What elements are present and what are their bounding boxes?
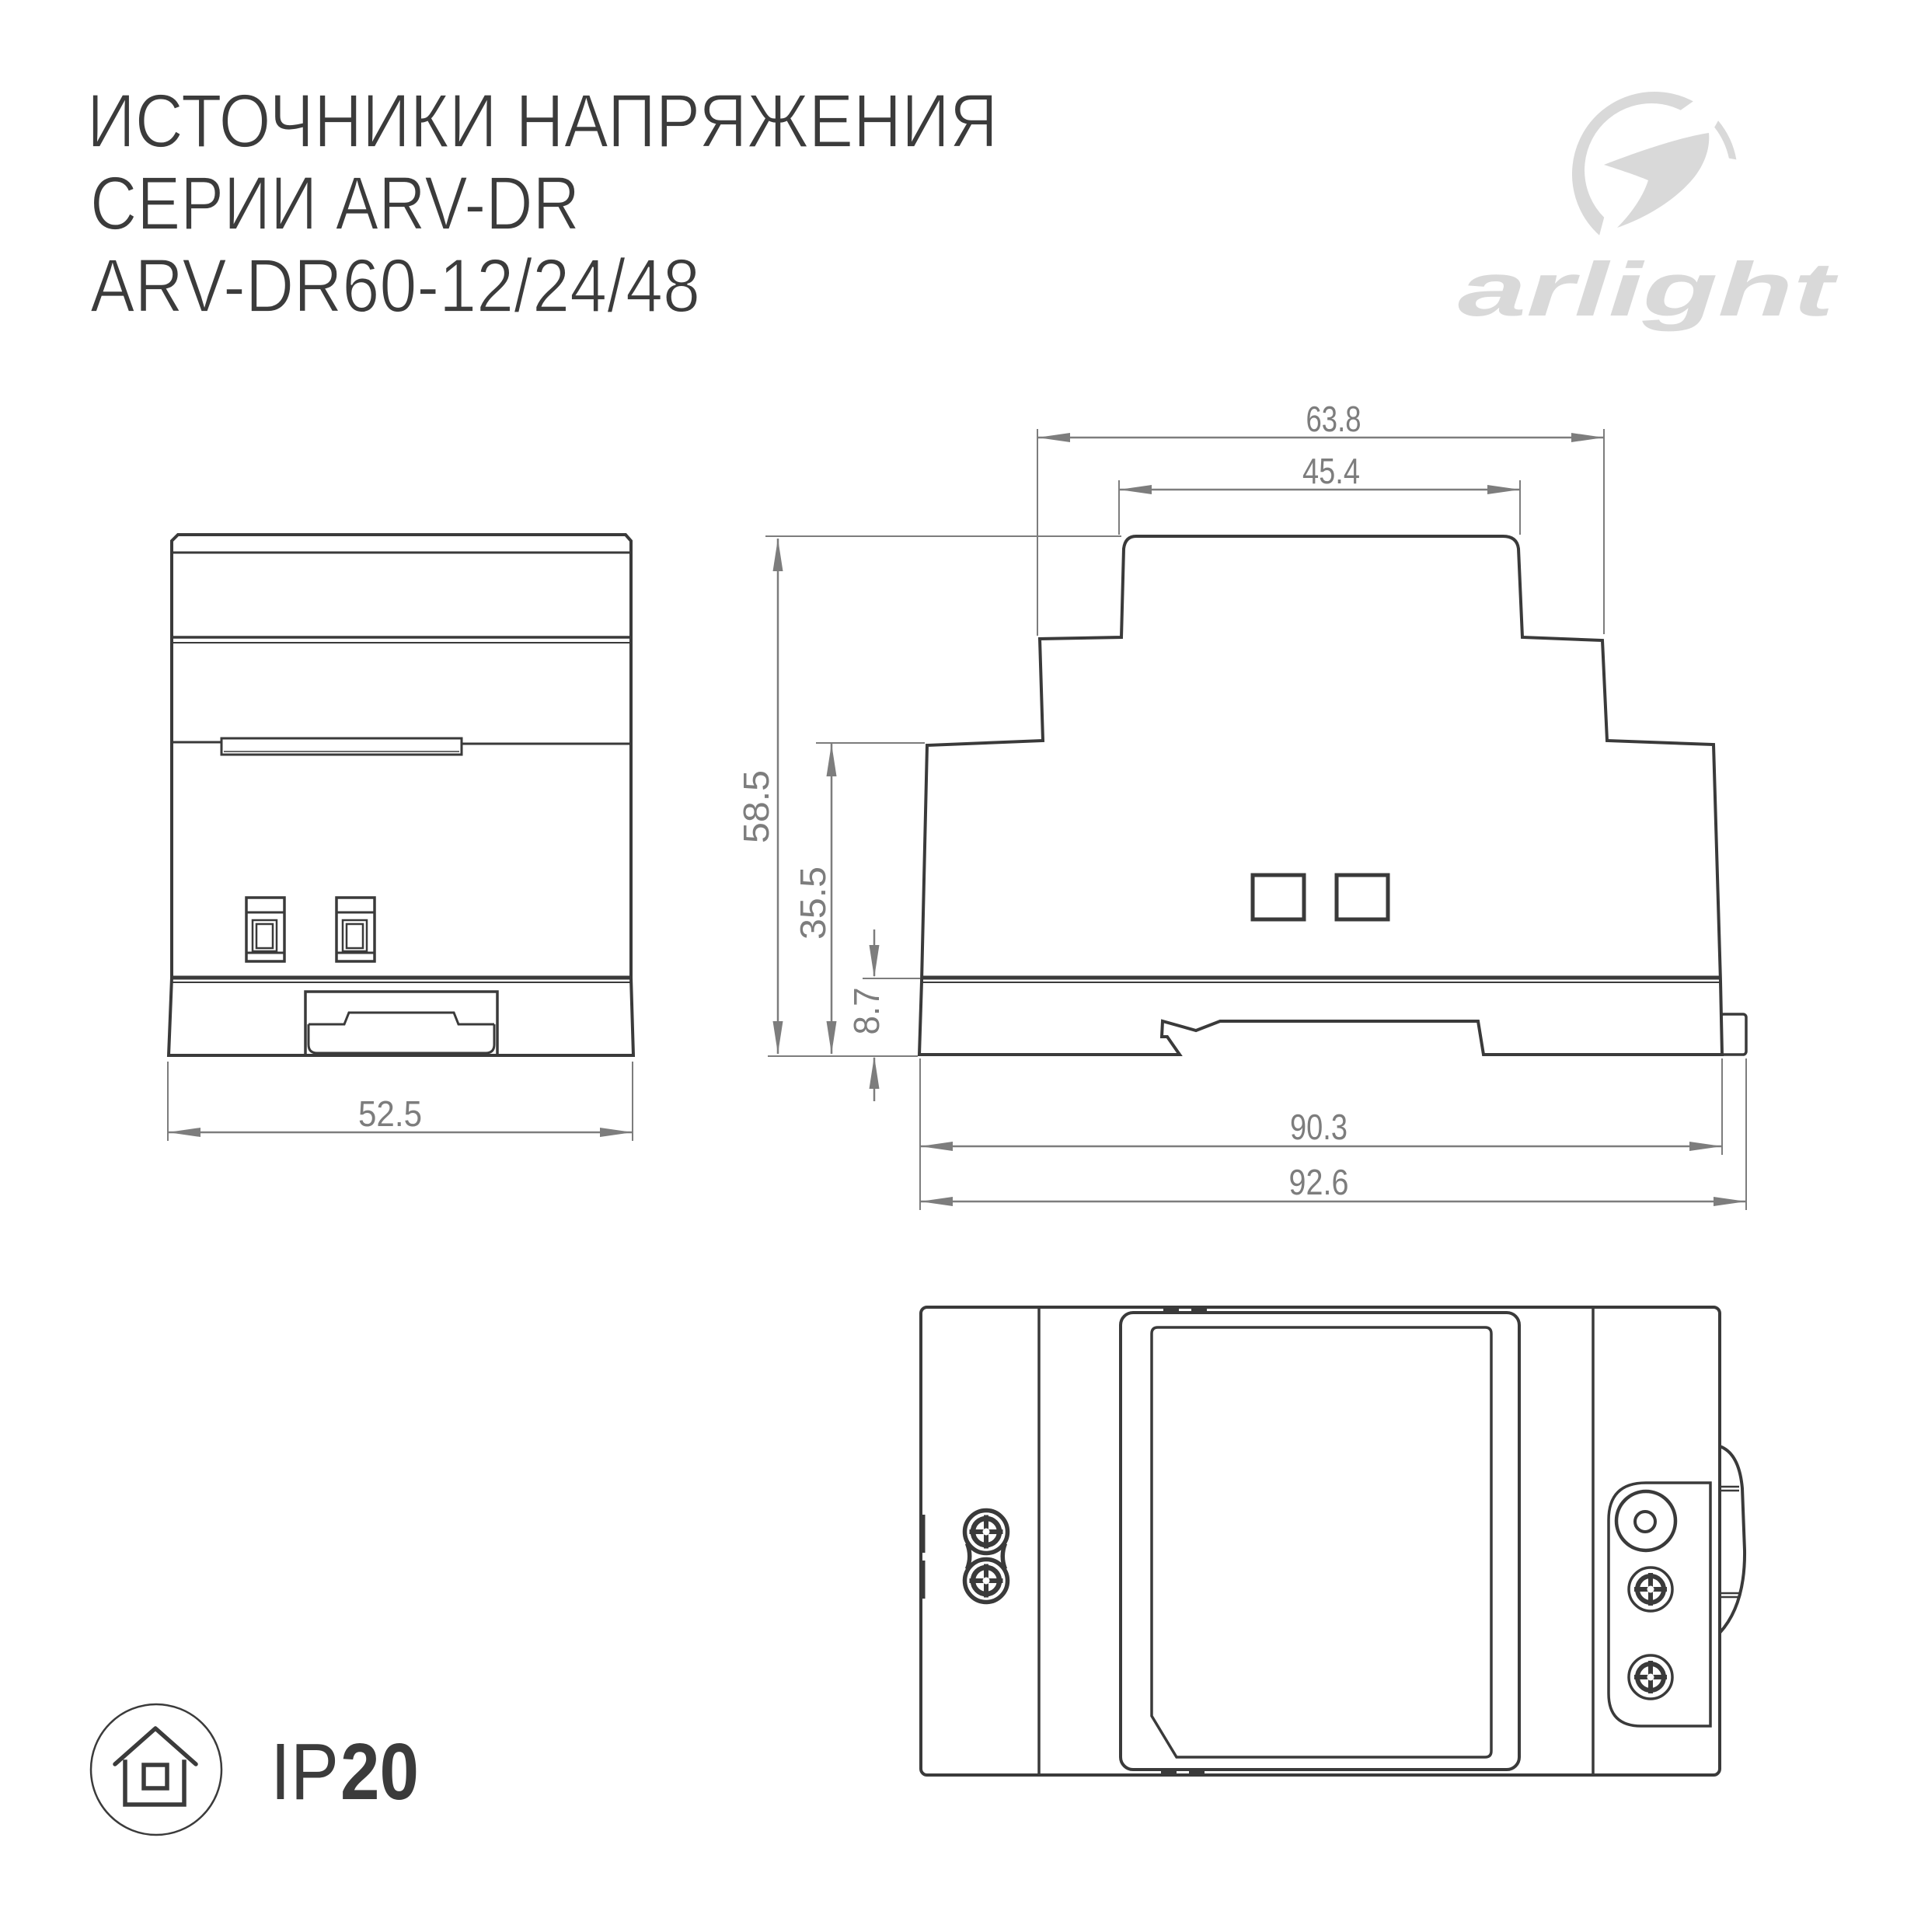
svg-text:20: 20 — [340, 1727, 419, 1816]
svg-text:92.6: 92.6 — [1289, 1162, 1349, 1202]
svg-text:arlight: arlight — [1458, 246, 1838, 332]
svg-text:ARV-DR60-12/24/48: ARV-DR60-12/24/48 — [90, 243, 700, 328]
svg-text:90.3: 90.3 — [1290, 1107, 1348, 1147]
svg-text:8.7: 8.7 — [846, 988, 887, 1035]
svg-text:СЕРИИ ARV-DR: СЕРИИ ARV-DR — [90, 161, 580, 246]
svg-text:IP: IP — [270, 1727, 339, 1816]
svg-text:52.5: 52.5 — [358, 1093, 422, 1134]
svg-text:58.5: 58.5 — [736, 770, 776, 843]
svg-text:35.5: 35.5 — [793, 867, 833, 940]
svg-text:ИСТОЧНИКИ НАПРЯЖЕНИЯ: ИСТОЧНИКИ НАПРЯЖЕНИЯ — [87, 78, 998, 163]
svg-text:45.4: 45.4 — [1302, 451, 1360, 491]
svg-text:63.8: 63.8 — [1306, 399, 1361, 439]
